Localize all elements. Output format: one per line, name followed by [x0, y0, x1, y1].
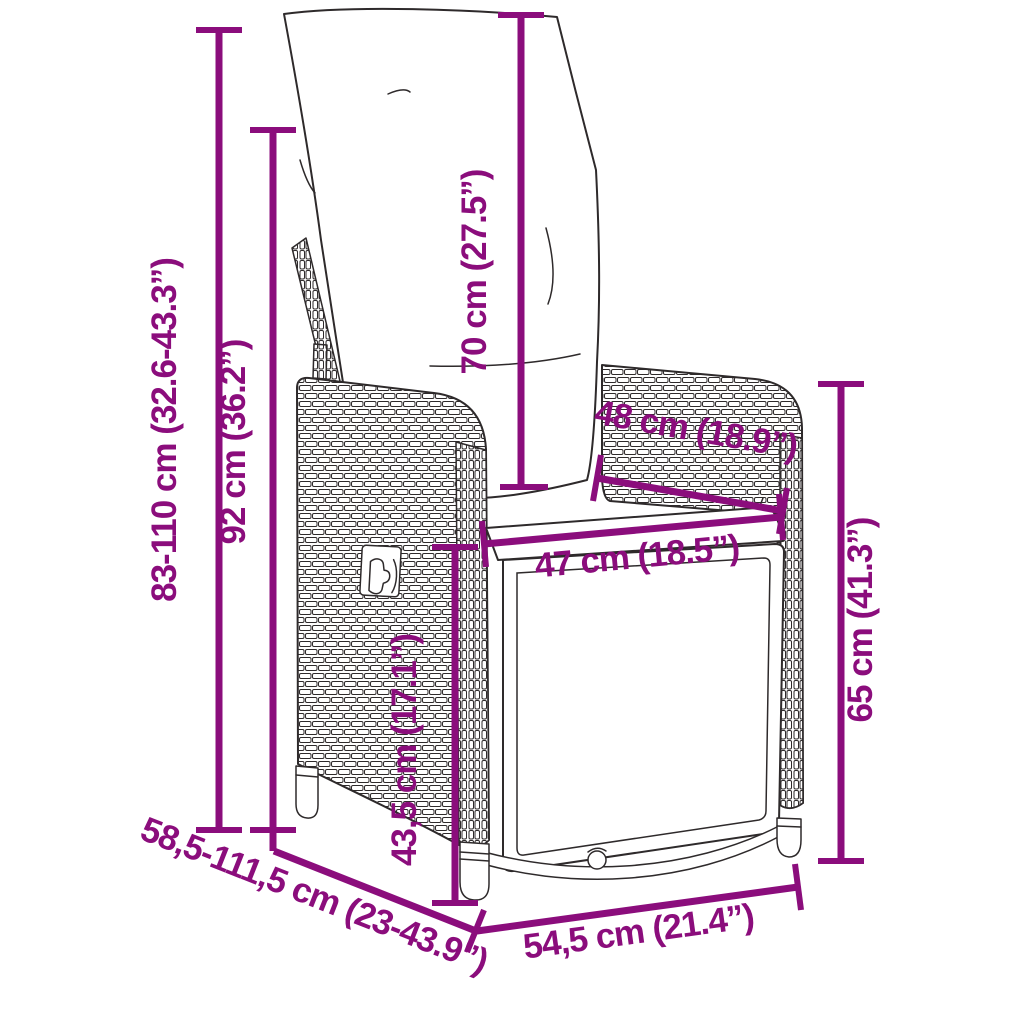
dim-side-height-label: 65 cm (41.3”)	[841, 518, 880, 723]
dimension-diagram: 83-110 cm (32.6-43.3”) 92 cm (36.2”) 70 …	[0, 0, 1024, 1024]
rear-left-leg	[296, 766, 318, 818]
chair-dimension-drawing: 83-110 cm (32.6-43.3”) 92 cm (36.2”) 70 …	[0, 0, 1024, 1024]
dim-back-height: 92 cm (36.2”)	[214, 130, 296, 851]
front-right-leg-band	[777, 826, 801, 827]
dim-back-height-label: 92 cm (36.2”)	[214, 340, 253, 545]
left-corner-post	[456, 442, 489, 848]
dim-side-height: 65 cm (41.3”)	[818, 384, 880, 861]
frame-stub	[313, 344, 327, 379]
recline-handle	[360, 545, 402, 597]
front-left-leg	[460, 842, 489, 900]
dim-seat-height-label: 43,5 cm (17.1”)	[385, 634, 424, 866]
front-right-leg	[777, 818, 801, 857]
dim-base-width: 54,5 cm (21.4”)	[477, 864, 801, 967]
dim-height-range-label: 83-110 cm (32.6-43.3”)	[145, 258, 184, 602]
roller-wheel	[588, 851, 606, 869]
dim-cushion-height-label: 70 cm (27.5”)	[455, 170, 494, 375]
